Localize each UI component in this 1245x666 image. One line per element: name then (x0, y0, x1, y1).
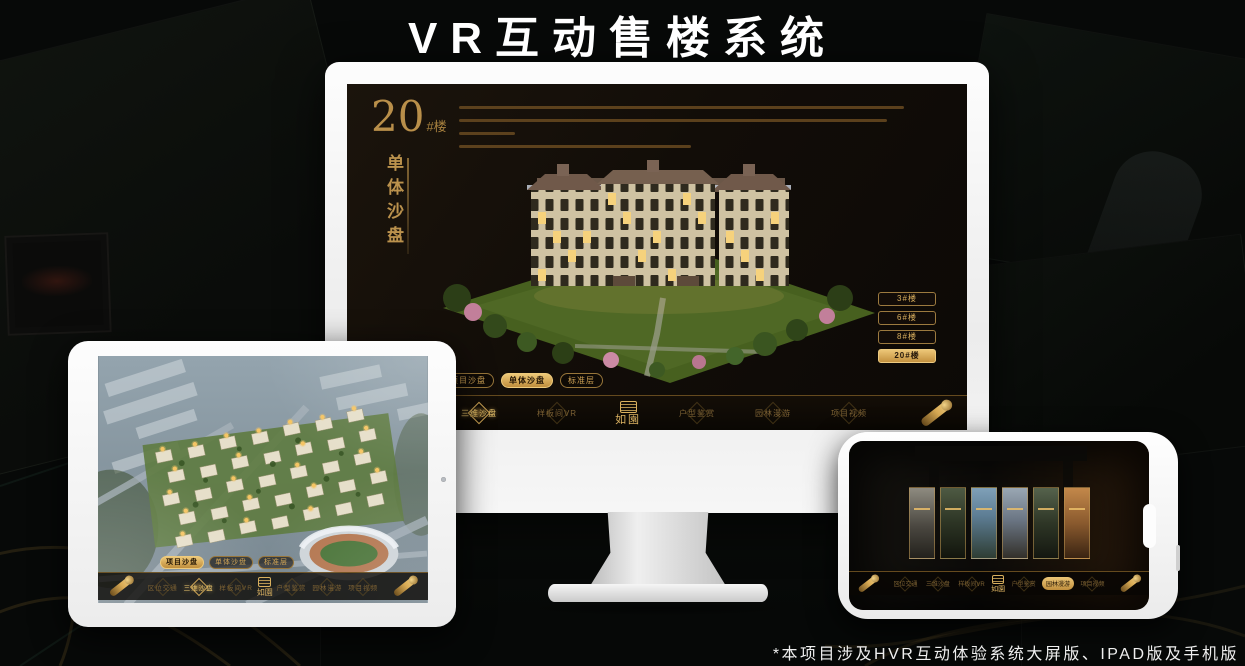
nav-item-showroom-vr[interactable]: 样板间VR (217, 578, 255, 596)
scroll-toggle-icon-right[interactable] (1119, 574, 1140, 592)
building-number: 20 (371, 92, 424, 141)
logo-text: 如園 (257, 589, 273, 597)
phone-side-button (1176, 545, 1180, 571)
building-heading: 20#楼 (371, 96, 447, 138)
nav-item-3d-sandbox[interactable]: 三维沙盘 (924, 575, 952, 592)
nav-item-unit-appreciation[interactable]: 户型鉴赏 (1010, 575, 1038, 592)
floor-button-3[interactable]: 3#楼 (878, 292, 936, 306)
scene-panel-building[interactable] (1002, 487, 1028, 559)
tab-standard-floor[interactable]: 标准层 (560, 373, 603, 388)
scene-panel-skyview[interactable] (971, 487, 997, 559)
tablet-camera-icon (441, 477, 446, 482)
poster-canvas: VR互动售楼系统 20#楼 单体沙盘 (0, 0, 1245, 666)
scene-panel-interior[interactable] (1064, 487, 1090, 559)
view-tabs: 项目沙盘 单体沙盘 标准层 (442, 373, 603, 388)
building-3d-model (435, 148, 880, 383)
monitor-stand-base (548, 584, 768, 602)
scene-panel-garden[interactable] (940, 487, 966, 559)
scroll-toggle-icon-right[interactable] (393, 576, 418, 598)
floor-button-group: 3#楼 6#楼 8#楼 20#楼 (878, 292, 936, 363)
nav-item-unit-appreciation[interactable]: 户型鉴赏 (275, 578, 309, 596)
phone-nav-bar: 区位交通 三维沙盘 样板间VR 如園 户型鉴赏 园林漫游 项目视频 (849, 571, 1149, 595)
nav-item-garden-roam[interactable]: 园林漫游 (1042, 577, 1074, 590)
project-logo[interactable]: 如園 (991, 575, 1005, 593)
monitor-shadow (518, 600, 798, 616)
project-logo[interactable]: 如園 (615, 401, 641, 426)
floor-button-20[interactable]: 20#楼 (878, 349, 936, 363)
nav-item-3d-sandbox[interactable]: 三维沙盘 (182, 578, 216, 596)
phone-notch (1143, 504, 1156, 548)
logo-seal-icon (258, 577, 271, 587)
scene-panel-courtyard[interactable] (909, 487, 935, 559)
page-title: VR互动售楼系统 (0, 2, 1245, 66)
gate-silhouette (915, 446, 1087, 461)
nav-item-project-video[interactable]: 项目视频 (346, 578, 380, 596)
tablet-nav-bar: 区位交通 三维沙盘 样板间VR 如園 户型鉴赏 园林漫游 项目视频 (98, 572, 428, 600)
scroll-toggle-icon[interactable] (920, 399, 952, 427)
nav-item-3d-sandbox[interactable]: 三维沙盘 (459, 404, 499, 423)
phone-screen: 区位交通 三维沙盘 样板间VR 如園 户型鉴赏 园林漫游 项目视频 (849, 441, 1149, 610)
tablet-tab-standard-floor[interactable]: 标准层 (258, 556, 294, 569)
nav-item-garden-roam[interactable]: 园林漫游 (310, 578, 344, 596)
logo-text: 如園 (991, 586, 1005, 593)
tablet-tab-project-sandbox[interactable]: 项目沙盘 (160, 556, 204, 569)
floor-button-6[interactable]: 6#楼 (878, 311, 936, 325)
nav-item-showroom-vr[interactable]: 样板间VR (535, 404, 579, 423)
logo-seal-icon (992, 575, 1004, 584)
nav-item-unit-appreciation[interactable]: 户型鉴赏 (677, 404, 717, 423)
building-number-suffix: #楼 (426, 119, 446, 134)
tablet-screen: 项目沙盘 单体沙盘 标准层 区位交通 三维沙盘 样板间VR 如園 户型鉴赏 园林… (98, 356, 428, 603)
background-river-image (1067, 140, 1213, 340)
tablet-view-tabs: 项目沙盘 单体沙盘 标准层 (160, 556, 294, 569)
scene-gallery (909, 487, 1090, 559)
nav-item-showroom-vr[interactable]: 样板间VR (956, 575, 986, 592)
floor-button-8[interactable]: 8#楼 (878, 330, 936, 344)
project-logo[interactable]: 如園 (257, 577, 273, 597)
nav-item-location-traffic[interactable]: 区位交通 (891, 575, 919, 592)
tab-single-sandbox[interactable]: 单体沙盘 (501, 373, 553, 388)
footnote-caption: *本项目涉及HVR互动体验系统大屏版、IPAD版及手机版 (773, 640, 1239, 664)
scroll-toggle-icon-left[interactable] (109, 576, 134, 598)
section-title-vertical: 单体沙盘 (381, 154, 406, 274)
nav-item-location-traffic[interactable]: 区位交通 (146, 578, 180, 596)
logo-text: 如園 (615, 415, 641, 426)
tablet-tab-single-sandbox[interactable]: 单体沙盘 (209, 556, 253, 569)
logo-seal-icon (620, 401, 637, 413)
nav-item-project-video[interactable]: 项目视频 (829, 404, 869, 423)
nav-item-project-video[interactable]: 项目视频 (1078, 575, 1106, 592)
nav-item-garden-roam[interactable]: 园林漫游 (753, 404, 793, 423)
scene-panel-landscape[interactable] (1033, 487, 1059, 559)
monitor-stand-neck (590, 512, 726, 586)
heading-divider (407, 158, 409, 254)
scroll-toggle-icon-left[interactable] (857, 574, 878, 592)
background-award-plaque (4, 232, 111, 336)
